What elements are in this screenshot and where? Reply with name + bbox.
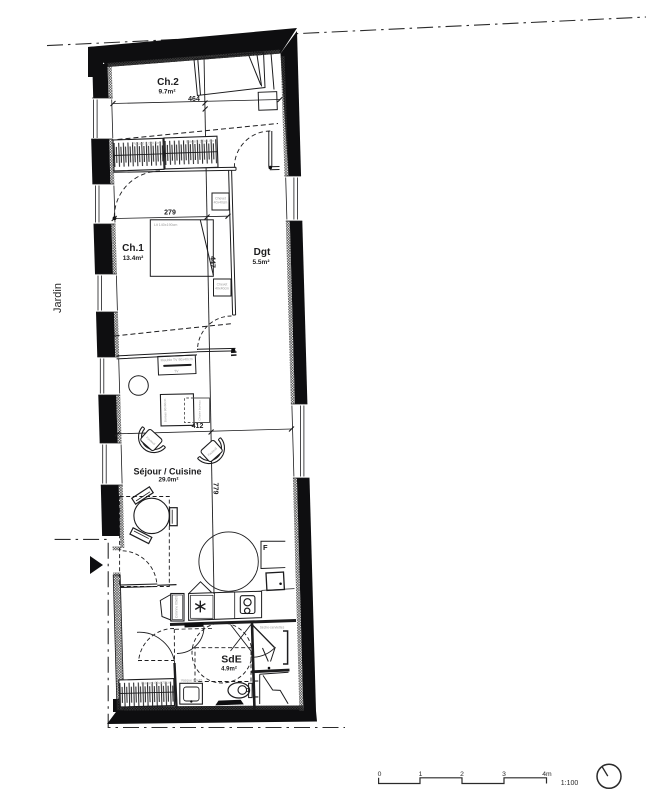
svg-text:2: 2 [460,771,464,778]
svg-text:40x40cm: 40x40cm [214,201,228,205]
svg-text:Lit 140x190cm: Lit 140x190cm [154,223,177,227]
svg-text:779: 779 [212,483,219,495]
svg-text:Colonne 60x60: Colonne 60x60 [175,596,179,618]
svg-text:13.4m²: 13.4m² [123,255,144,262]
svg-text:Séjour / Cuisine: Séjour / Cuisine [133,467,201,477]
svg-text:F: F [263,543,268,552]
svg-text:1: 1 [419,771,423,778]
svg-text:0: 0 [378,771,382,778]
svg-text:4.9m²: 4.9m² [221,666,237,673]
svg-text:Ch.1: Ch.1 [122,243,144,254]
svg-text:SdE: SdE [221,654,241,666]
svg-text:40x40cm: 40x40cm [215,287,229,291]
svg-text:Placard 60x170cm: Placard 60x170cm [141,681,171,686]
svg-text:Jardin: Jardin [52,283,64,313]
svg-text:Sèche-serviettes: Sèche-serviettes [260,626,285,630]
svg-text:1:100: 1:100 [561,780,579,787]
svg-text:279: 279 [164,210,176,217]
svg-text:Ch.2: Ch.2 [157,77,179,88]
svg-text:TV: TV [174,369,179,373]
svg-text:Dgt: Dgt [254,247,271,258]
svg-text:Meuble TV 90x40cm: Meuble TV 90x40cm [161,357,193,362]
svg-text:29.0m²: 29.0m² [159,477,179,484]
svg-text:412: 412 [192,423,204,430]
svg-text:Vasque 60x45: Vasque 60x45 [181,679,203,683]
svg-text:3: 3 [502,771,506,778]
svg-text:Bureau 80x80cm: Bureau 80x80cm [163,398,167,422]
svg-text:4m: 4m [542,771,552,778]
svg-text:Chaise bureau: Chaise bureau [198,400,202,420]
svg-text:5.5m²: 5.5m² [253,259,271,266]
svg-text:9.7m²: 9.7m² [159,89,177,96]
svg-text:464: 464 [188,96,200,103]
